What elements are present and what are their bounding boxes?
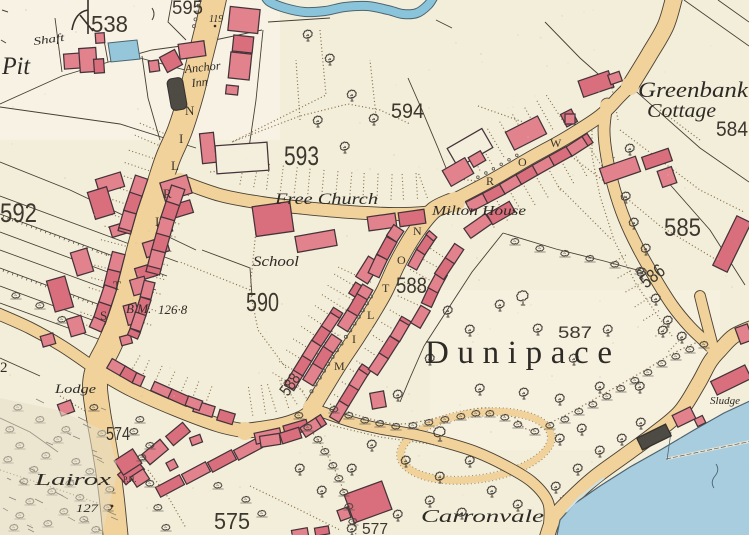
svg-text:S: S <box>100 308 107 323</box>
svg-text:B.M.: B.M. <box>126 301 151 316</box>
svg-text:593: 593 <box>284 141 319 171</box>
svg-text:P.H.: P.H. <box>123 475 136 484</box>
svg-text:584: 584 <box>716 118 748 141</box>
svg-text:I: I <box>179 131 183 146</box>
svg-text:126·8: 126·8 <box>158 302 188 317</box>
svg-text:Milton House: Milton House <box>431 204 526 219</box>
svg-text:L: L <box>367 308 374 322</box>
svg-text:538: 538 <box>91 11 128 37</box>
svg-text:2: 2 <box>0 360 8 376</box>
svg-text:R: R <box>486 174 494 188</box>
svg-text:127: 127 <box>76 501 99 515</box>
svg-text:Sludge: Sludge <box>710 396 741 407</box>
svg-text:Cottage: Cottage <box>647 100 716 122</box>
svg-text:577: 577 <box>362 521 388 535</box>
svg-text:O: O <box>518 155 527 169</box>
svg-text:T: T <box>382 281 390 295</box>
svg-text:594: 594 <box>391 100 424 123</box>
svg-text:R: R <box>163 186 172 201</box>
svg-text:N: N <box>185 103 195 118</box>
svg-text:O: O <box>397 253 406 267</box>
svg-text:L: L <box>171 158 179 173</box>
svg-text:Lairox: Lairox <box>33 470 111 489</box>
svg-text:588: 588 <box>396 273 427 298</box>
svg-text:595: 595 <box>172 0 203 19</box>
svg-text:592: 592 <box>0 198 37 228</box>
svg-text:School: School <box>253 254 299 270</box>
svg-text:Free Church: Free Church <box>274 191 378 208</box>
svg-text:I: I <box>352 332 356 346</box>
svg-text:N: N <box>413 224 422 238</box>
svg-text:574: 574 <box>106 424 130 444</box>
svg-text:Pit: Pit <box>1 53 31 80</box>
svg-text:585: 585 <box>664 214 701 242</box>
svg-text:119: 119 <box>209 14 223 25</box>
svg-text:590: 590 <box>246 287 279 317</box>
svg-text:T: T <box>113 278 121 293</box>
svg-text:I: I <box>155 214 159 229</box>
svg-text:Greenbank: Greenbank <box>638 77 749 102</box>
svg-text:Carronvale: Carronvale <box>421 506 544 526</box>
svg-text:M: M <box>334 359 345 373</box>
svg-text:575: 575 <box>214 508 250 534</box>
svg-text:Lodge: Lodge <box>54 381 97 396</box>
svg-text:W: W <box>550 136 562 150</box>
svg-text:Inn: Inn <box>190 74 208 90</box>
